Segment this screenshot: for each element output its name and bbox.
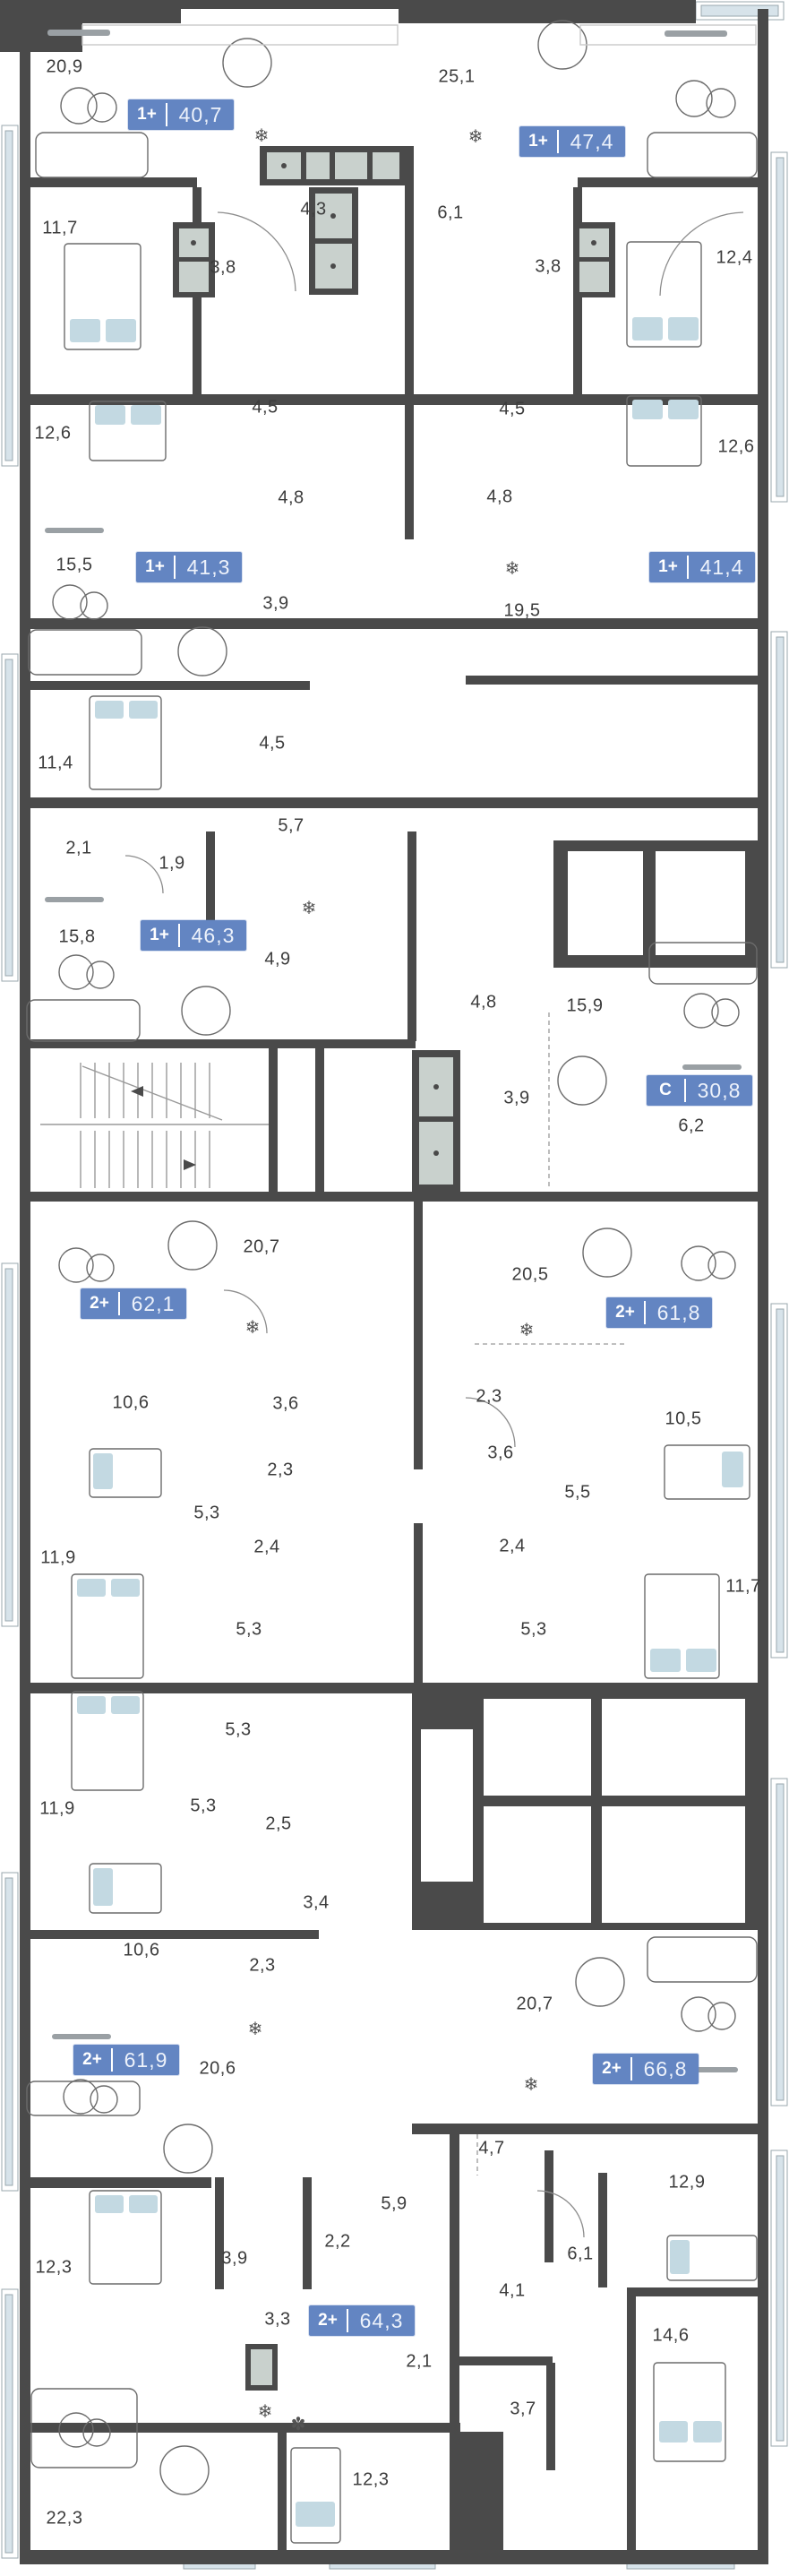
floor-plan: ❄ ❄ ❄ ❄ ❄ ❄ ❄ ❄ ❄ ✽ 20,9 25,1 11,7 4,3 6… [0, 0, 789, 2576]
room-area-label: 2,4 [253, 1538, 279, 1558]
apartment-type: 2+ [606, 1297, 644, 1328]
apartment-area: 61,8 [646, 1297, 712, 1328]
room-area-label: 15,8 [59, 927, 96, 948]
room-area-label: 20,7 [517, 1994, 553, 2015]
apartment-area: 64,3 [348, 2305, 415, 2336]
svg-text:❄: ❄ [248, 2020, 263, 2039]
room-area-label: 5,9 [381, 2194, 407, 2215]
room-area-label: 4,8 [486, 487, 512, 508]
room-area-label: 2,2 [324, 2232, 350, 2253]
apartment-type: 2+ [309, 2305, 347, 2336]
room-area-label: 2,3 [476, 1387, 502, 1408]
apartment-type: 1+ [519, 126, 557, 157]
dining-table [160, 21, 631, 2494]
apartment-type: 2+ [73, 2045, 111, 2075]
room-area-label: 3,3 [264, 2310, 290, 2330]
room-area-label: 5,3 [236, 1620, 262, 1641]
svg-text:❄: ❄ [505, 559, 520, 579]
staircase [40, 1063, 269, 1188]
shaft-dots [191, 163, 596, 1156]
room-area-label: 11,9 [39, 1799, 74, 1820]
apartment-badge[interactable]: 2+ 64,3 [309, 2305, 415, 2336]
room-area-label: 11,4 [38, 754, 73, 774]
room-area-label: 3,9 [503, 1089, 529, 1109]
room-area-label: 4,1 [499, 2281, 525, 2302]
apartment-badge[interactable]: 1+ 41,3 [136, 552, 242, 582]
room-area-label: 6,1 [437, 203, 463, 224]
svg-text:❄: ❄ [468, 127, 484, 147]
room-area-label: 2,1 [65, 839, 91, 859]
bed [64, 242, 757, 2543]
apartment-area: 61,9 [113, 2045, 179, 2075]
room-area-label: 5,5 [564, 1483, 590, 1503]
room-area-label: 4,5 [259, 734, 285, 754]
room-area-label: 1,9 [159, 854, 184, 874]
room-area-label: 4,8 [278, 488, 304, 509]
room-area-label: 20,5 [512, 1265, 549, 1286]
room-area-label: 4,5 [499, 400, 525, 420]
apartment-area: 41,3 [176, 552, 242, 582]
room-area-label: 5,3 [190, 1796, 216, 1817]
armchair [53, 81, 739, 2447]
room-area-label: 3,6 [272, 1394, 298, 1415]
apartment-type: 1+ [649, 552, 687, 582]
apartment-type: С [647, 1075, 684, 1106]
room-area-label: 3,8 [535, 257, 561, 278]
svg-text:❄: ❄ [302, 899, 317, 918]
room-area-label: 5,7 [278, 816, 304, 837]
room-area-label: 10,5 [665, 1409, 702, 1430]
room-area-label: 12,3 [353, 2470, 390, 2491]
room-area-label: 10,6 [124, 1941, 160, 1961]
room-area-label: 20,7 [244, 1237, 280, 1258]
room-area-label: 12,3 [36, 2258, 73, 2279]
wardrobe [82, 25, 756, 45]
room-area-label: 4,9 [264, 950, 290, 970]
room-area-label: 10,6 [113, 1393, 150, 1414]
room-area-label: 12,6 [718, 437, 755, 458]
apartment-badge[interactable]: 1+ 46,3 [141, 920, 246, 951]
room-area-label: 4,7 [478, 2139, 504, 2159]
apartment-area: 30,8 [686, 1075, 752, 1106]
apartment-badge[interactable]: 2+ 66,8 [593, 2054, 699, 2084]
walls [0, 0, 768, 2564]
room-area-label: 5,3 [225, 1720, 251, 1741]
room-area-label: 6,2 [678, 1116, 704, 1137]
room-area-label: 15,5 [56, 556, 93, 576]
room-area-label: 2,3 [249, 1956, 275, 1977]
apartment-badge[interactable]: 2+ 62,1 [81, 1288, 186, 1319]
room-area-label: 3,8 [210, 258, 236, 279]
apartment-badge[interactable]: 2+ 61,8 [606, 1297, 712, 1328]
apartment-type: 1+ [136, 552, 174, 582]
apartment-area: 46,3 [180, 920, 246, 951]
room-area-label: 3,7 [510, 2399, 536, 2420]
room-area-label: 2,4 [499, 1537, 525, 1557]
apartment-area: 66,8 [632, 2054, 699, 2084]
room-area-label: 11,7 [725, 1577, 760, 1598]
room-area-label: 20,9 [47, 57, 83, 78]
room-area-label: 12,9 [669, 2173, 706, 2193]
room-area-label: 4,3 [300, 200, 326, 220]
svg-text:❄: ❄ [245, 1318, 261, 1338]
apartment-type: 1+ [141, 920, 178, 951]
room-area-label: 12,4 [716, 248, 753, 269]
room-area-label: 6,1 [567, 2244, 593, 2265]
svg-text:❄: ❄ [254, 126, 270, 146]
room-area-label: 15,9 [567, 996, 604, 1017]
room-area-label: 20,6 [200, 2059, 236, 2080]
room-area-label: 5,3 [193, 1503, 219, 1524]
room-area-label: 3,9 [221, 2249, 247, 2270]
room-area-label: 2,1 [406, 2352, 432, 2373]
apartment-badge[interactable]: 1+ 40,7 [128, 99, 234, 130]
snowflake-icon: ❄ ❄ ❄ ❄ ❄ ❄ ❄ ❄ ❄ ✽ [245, 126, 539, 2434]
svg-text:❄: ❄ [519, 1321, 535, 1340]
room-area-label: 3,9 [262, 594, 288, 615]
svg-text:❄: ❄ [524, 2075, 539, 2095]
room-area-label: 25,1 [439, 67, 476, 88]
room-area-label: 11,7 [42, 219, 77, 239]
room-area-label: 5,3 [520, 1620, 546, 1641]
fan-icon: ✽ [291, 2415, 306, 2434]
apartment-area: 62,1 [120, 1288, 186, 1319]
apartment-badge[interactable]: 2+ 61,9 [73, 2045, 179, 2075]
apartment-area: 47,4 [559, 126, 625, 157]
room-area-label: 2,5 [265, 1814, 291, 1835]
room-area-label: 3,4 [303, 1893, 329, 1914]
apartment-type: 1+ [128, 99, 166, 130]
apartment-badge[interactable]: 1+ 41,4 [649, 552, 755, 582]
room-area-label: 3,6 [487, 1443, 513, 1464]
room-area-label: 2,3 [267, 1460, 293, 1481]
room-area-label: 11,9 [40, 1548, 75, 1569]
apartment-type: 2+ [81, 1288, 118, 1319]
room-area-label: 4,8 [470, 993, 496, 1013]
apartment-type: 2+ [593, 2054, 630, 2084]
apartment-area: 41,4 [689, 552, 755, 582]
room-area-label: 4,5 [252, 398, 278, 418]
room-area-label: 19,5 [504, 601, 541, 622]
room-area-label: 22,3 [47, 2509, 83, 2529]
svg-text:❄: ❄ [258, 2402, 273, 2422]
room-area-label: 12,6 [35, 424, 72, 444]
apartment-badge[interactable]: 1+ 47,4 [519, 126, 625, 157]
apartment-area: 40,7 [167, 99, 234, 130]
room-area-label: 14,6 [653, 2326, 690, 2347]
apartment-badge[interactable]: С 30,8 [647, 1075, 752, 1106]
